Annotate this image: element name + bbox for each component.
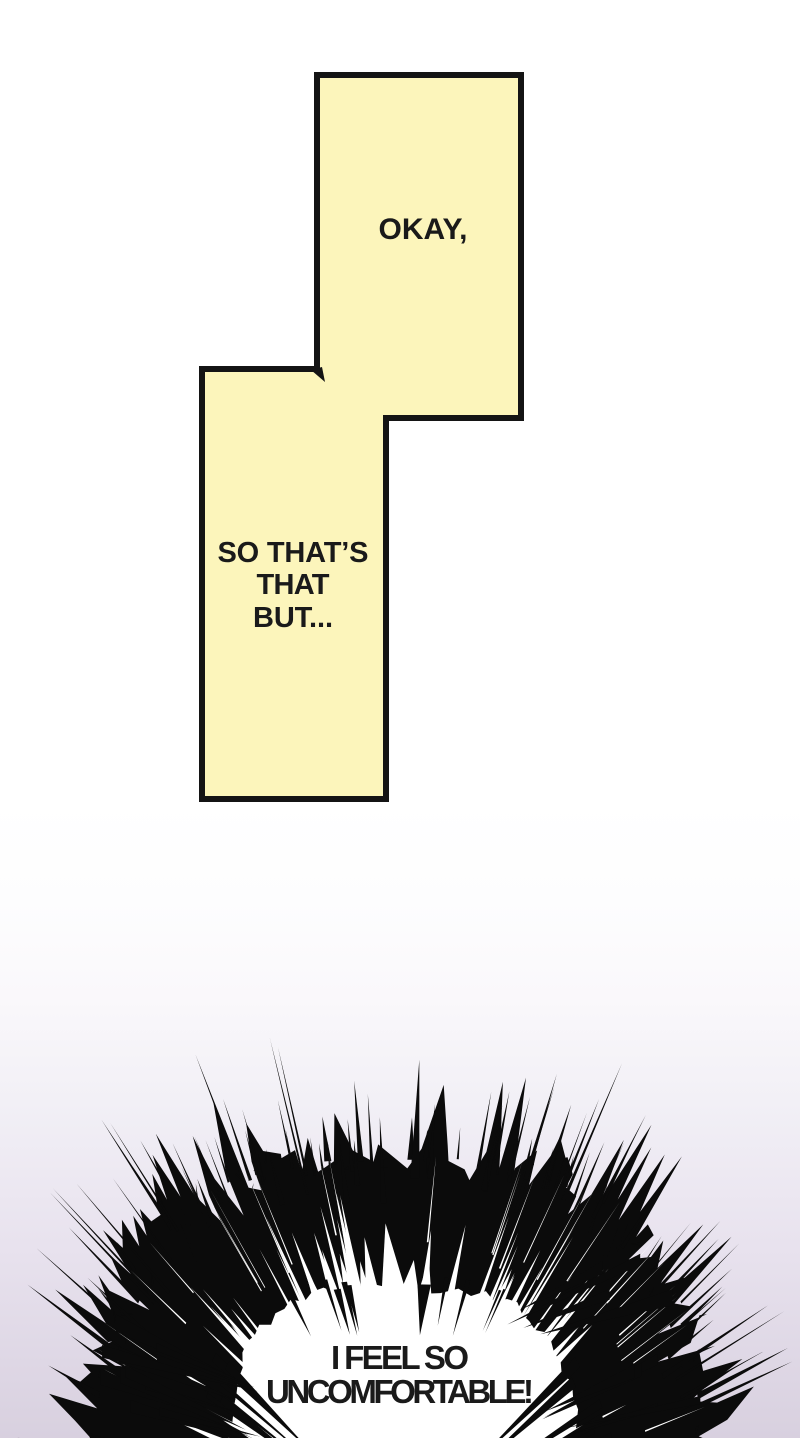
- svg-text:I FEEL SO: I FEEL SO: [331, 1339, 469, 1376]
- svg-text:BUT...: BUT...: [253, 602, 333, 634]
- svg-text:UNCOMFORTABLE!: UNCOMFORTABLE!: [266, 1373, 534, 1410]
- svg-text:THAT: THAT: [257, 569, 330, 601]
- svg-text:OKAY,: OKAY,: [379, 213, 468, 246]
- svg-text:SO THAT’S: SO THAT’S: [218, 537, 369, 569]
